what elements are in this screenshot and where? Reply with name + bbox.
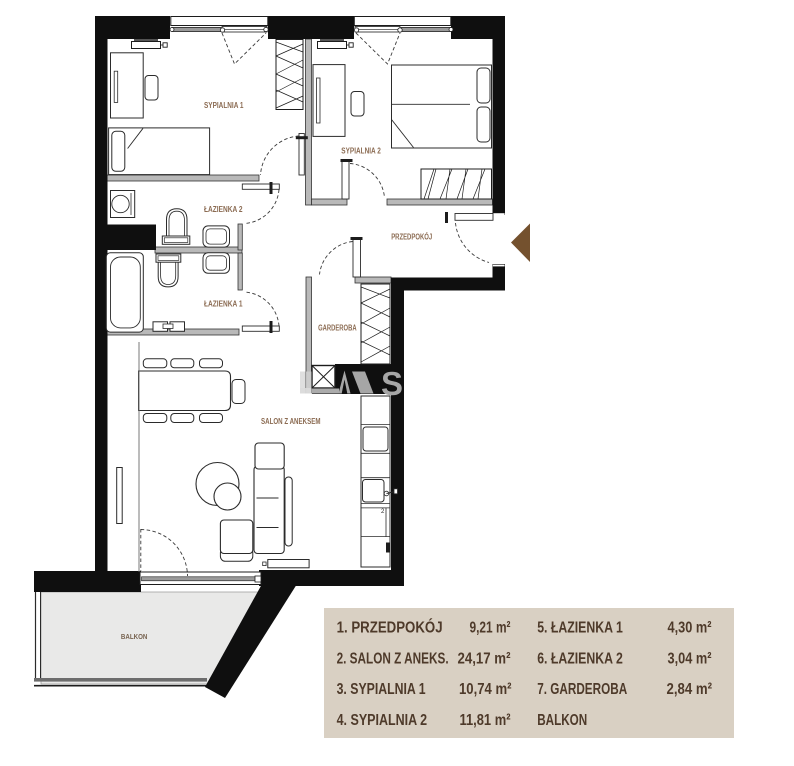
svg-text:ŁAZIENKA 2: ŁAZIENKA 2: [204, 204, 243, 214]
svg-text:ŁAZIENKA 1: ŁAZIENKA 1: [204, 299, 243, 309]
svg-text:3. SYPIALNIA 1: 3. SYPIALNIA 1: [337, 681, 426, 698]
svg-text:BALKON: BALKON: [537, 712, 587, 729]
svg-text:SYPIALNIA 2: SYPIALNIA 2: [341, 146, 381, 156]
svg-text:6. ŁAZIENKA 2: 6. ŁAZIENKA 2: [537, 650, 623, 667]
svg-text:10,74 m²: 10,74 m²: [459, 681, 512, 698]
svg-text:11,81 m²: 11,81 m²: [460, 712, 511, 729]
svg-text:1. PRZEDPOKÓJ: 1. PRZEDPOKÓJ: [337, 618, 443, 637]
svg-text:PRZEDPOKÓJ: PRZEDPOKÓJ: [391, 230, 432, 241]
svg-text:5. ŁAZIENKA 1: 5. ŁAZIENKA 1: [537, 620, 623, 637]
svg-text:SYPIALNIA 1: SYPIALNIA 1: [204, 100, 244, 110]
svg-text:9,21 m²: 9,21 m²: [470, 620, 511, 637]
svg-text:4,30 m²: 4,30 m²: [668, 620, 712, 637]
svg-text:SALON Z ANEKSEM: SALON Z ANEKSEM: [261, 416, 321, 426]
svg-text:7. GARDEROBA: 7. GARDEROBA: [537, 681, 627, 698]
svg-text:S: S: [381, 365, 403, 402]
svg-text:2. SALON Z ANEKS.: 2. SALON Z ANEKS.: [337, 650, 449, 667]
svg-text:2,84 m²: 2,84 m²: [667, 681, 713, 698]
svg-text:3,04 m²: 3,04 m²: [668, 650, 712, 667]
svg-text:GARDEROBA: GARDEROBA: [318, 322, 357, 332]
svg-text:BALKON: BALKON: [121, 632, 147, 641]
svg-text:4. SYPIALNIA 2: 4. SYPIALNIA 2: [337, 712, 428, 729]
svg-text:24,17 m²: 24,17 m²: [458, 650, 511, 667]
